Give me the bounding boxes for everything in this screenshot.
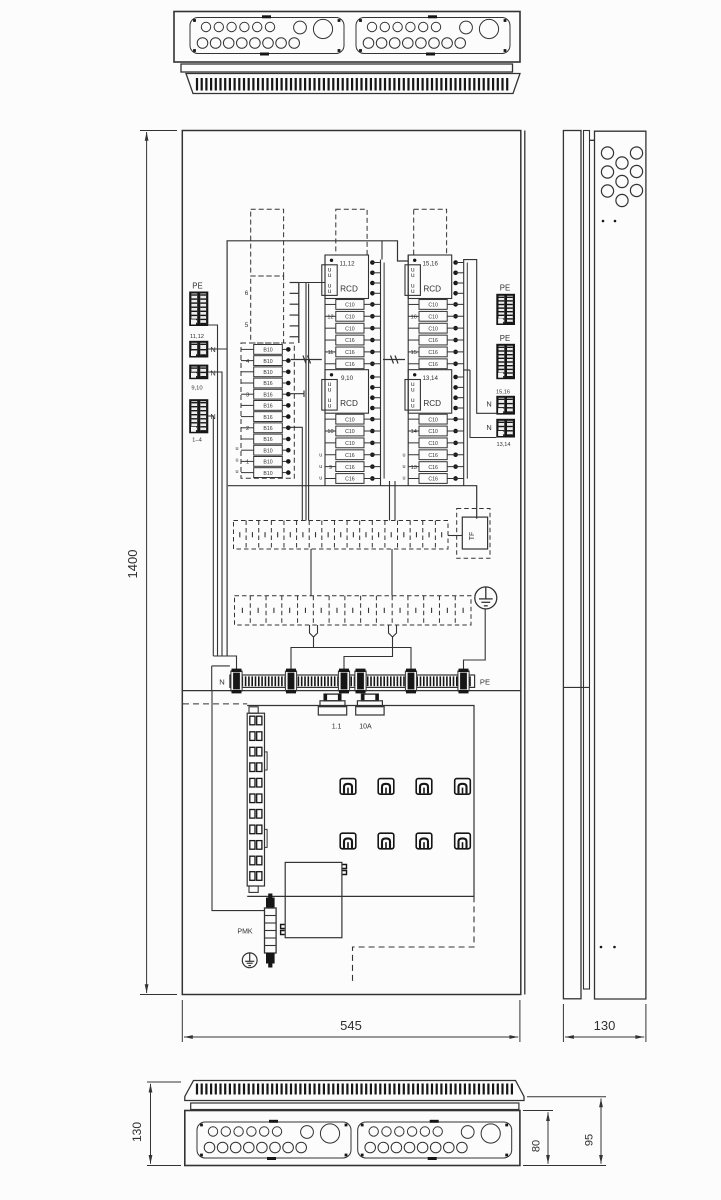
svg-text:95: 95 — [584, 1134, 596, 1146]
svg-text:130: 130 — [594, 1018, 616, 1033]
svg-text:N: N — [210, 369, 215, 378]
svg-text:C10: C10 — [345, 417, 355, 423]
svg-text:RCD: RCD — [423, 285, 441, 294]
svg-text:u: u — [411, 387, 415, 394]
svg-text:545: 545 — [340, 1018, 362, 1033]
svg-text:C10: C10 — [428, 417, 438, 423]
svg-text:B16: B16 — [263, 426, 272, 432]
svg-text:C16: C16 — [345, 338, 355, 344]
svg-text:1.1: 1.1 — [332, 724, 342, 731]
svg-text:10A: 10A — [359, 724, 372, 731]
svg-text:B16: B16 — [263, 404, 272, 410]
svg-text:6: 6 — [245, 290, 249, 297]
svg-text:u: u — [403, 476, 406, 482]
svg-text:u: u — [403, 453, 406, 459]
svg-text:PMK: PMK — [237, 929, 253, 936]
svg-text:C16: C16 — [345, 465, 355, 471]
svg-text:9,10: 9,10 — [191, 386, 202, 392]
svg-text:B10: B10 — [263, 448, 272, 454]
svg-text:TF: TF — [469, 532, 476, 541]
svg-text:u: u — [328, 387, 332, 394]
svg-text:1: 1 — [246, 460, 249, 466]
svg-text:PE: PE — [192, 282, 202, 291]
svg-text:2: 2 — [246, 426, 249, 432]
svg-text:11,12: 11,12 — [190, 334, 204, 340]
svg-text:C16: C16 — [428, 453, 438, 459]
svg-text:C10: C10 — [428, 315, 438, 321]
svg-text:C16: C16 — [345, 477, 355, 483]
svg-text:C10: C10 — [345, 303, 355, 309]
svg-text:12: 12 — [327, 315, 333, 321]
svg-text:15,16: 15,16 — [496, 390, 510, 396]
svg-text:u: u — [319, 476, 322, 482]
svg-text:3: 3 — [246, 392, 249, 398]
svg-text:10: 10 — [327, 429, 333, 435]
svg-text:u: u — [236, 446, 239, 452]
svg-text:15,16: 15,16 — [422, 261, 438, 268]
svg-text:RCD: RCD — [423, 399, 441, 408]
svg-text:B16: B16 — [263, 415, 272, 421]
svg-text:B10: B10 — [263, 471, 272, 477]
svg-text:B16: B16 — [263, 381, 272, 387]
svg-text:N: N — [486, 400, 491, 409]
svg-text:B10: B10 — [263, 370, 272, 376]
svg-text:13: 13 — [411, 465, 417, 471]
svg-text:13,14: 13,14 — [422, 375, 438, 382]
svg-text:C16: C16 — [428, 477, 438, 483]
svg-text:B10: B10 — [263, 348, 272, 354]
svg-text:C16: C16 — [345, 350, 355, 356]
svg-text:14: 14 — [411, 429, 417, 435]
svg-text:B16: B16 — [263, 437, 272, 443]
svg-text:B10: B10 — [263, 359, 272, 365]
svg-text:11,12: 11,12 — [339, 261, 355, 268]
svg-text:PE: PE — [500, 284, 510, 293]
svg-text:u: u — [328, 288, 332, 295]
svg-text:C10: C10 — [428, 326, 438, 332]
svg-text:PE: PE — [480, 678, 490, 687]
svg-text:C16: C16 — [428, 465, 438, 471]
svg-text:u: u — [411, 272, 415, 279]
svg-text:9: 9 — [329, 465, 332, 471]
svg-text:u: u — [236, 458, 239, 464]
svg-text:PE: PE — [500, 334, 510, 343]
svg-text:130: 130 — [130, 1122, 144, 1142]
svg-text:C10: C10 — [428, 303, 438, 309]
svg-text:C10: C10 — [345, 429, 355, 435]
svg-text:C10: C10 — [428, 429, 438, 435]
svg-text:16: 16 — [411, 315, 417, 321]
svg-text:RCD: RCD — [340, 285, 358, 294]
svg-text:N: N — [486, 423, 491, 432]
svg-text:u: u — [319, 464, 322, 470]
svg-text:11: 11 — [328, 350, 334, 356]
svg-text:B10: B10 — [263, 460, 272, 466]
svg-text:B16: B16 — [263, 392, 272, 398]
svg-text:80: 80 — [531, 1140, 543, 1152]
svg-text:RCD: RCD — [340, 399, 358, 408]
svg-text:C10: C10 — [345, 315, 355, 321]
svg-text:15: 15 — [411, 350, 417, 356]
svg-text:u: u — [328, 272, 332, 279]
svg-text:13,14: 13,14 — [497, 442, 511, 448]
svg-text:C10: C10 — [428, 441, 438, 447]
svg-text:u: u — [411, 403, 415, 410]
svg-text:u: u — [236, 469, 239, 475]
svg-text:u: u — [411, 288, 415, 295]
svg-text:N: N — [219, 678, 224, 687]
svg-text:u: u — [319, 453, 322, 459]
svg-text:C10: C10 — [345, 441, 355, 447]
svg-text:1400: 1400 — [125, 550, 140, 579]
svg-text:C16: C16 — [428, 350, 438, 356]
svg-text:C16: C16 — [428, 338, 438, 344]
svg-text:C16: C16 — [345, 362, 355, 368]
svg-text:5: 5 — [245, 322, 249, 329]
svg-text:C16: C16 — [428, 362, 438, 368]
svg-text:9,10: 9,10 — [341, 375, 354, 382]
svg-text:u: u — [403, 464, 406, 470]
svg-text:C16: C16 — [345, 453, 355, 459]
svg-text:C10: C10 — [345, 326, 355, 332]
svg-text:u: u — [328, 403, 332, 410]
svg-text:1–4: 1–4 — [192, 438, 202, 444]
